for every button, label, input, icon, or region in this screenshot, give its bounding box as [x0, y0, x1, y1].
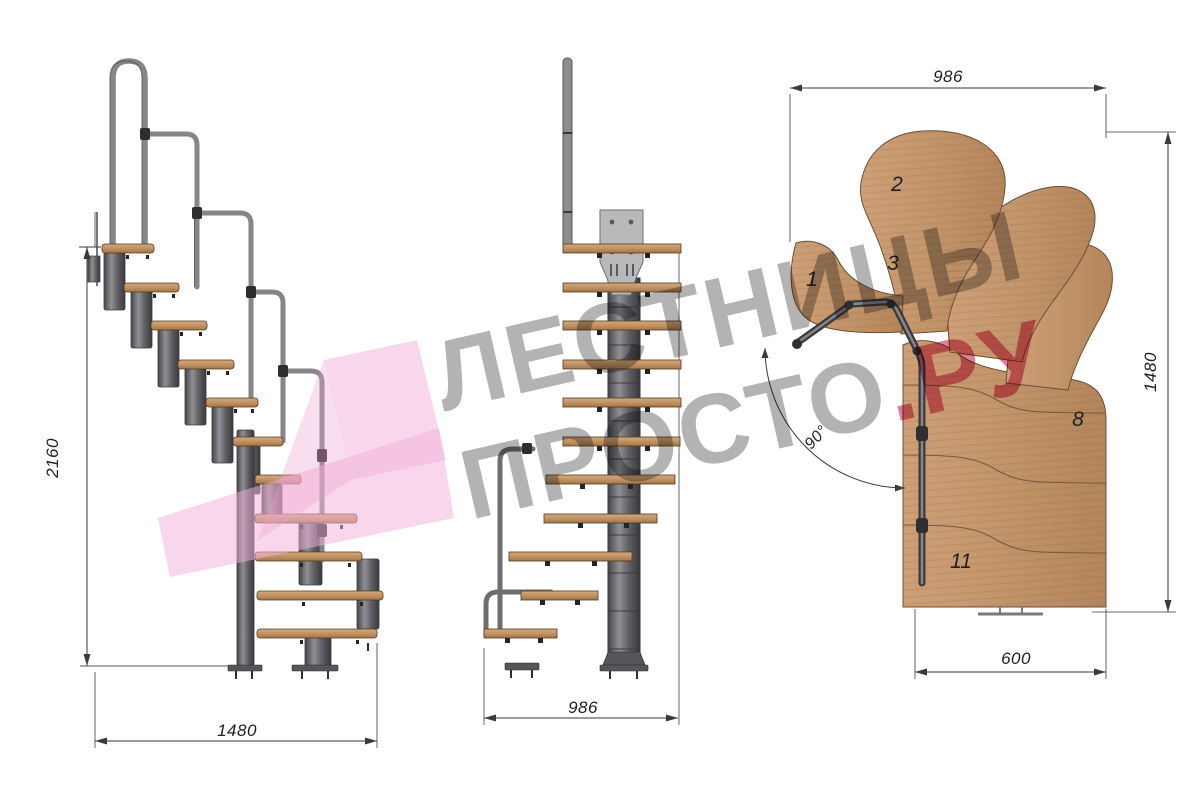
- plan-view: [791, 131, 1112, 614]
- front-view: [484, 58, 681, 725]
- tread-number-8: 8: [1072, 408, 1084, 432]
- staircase-vector-art: [0, 0, 1200, 790]
- tread-number-3: 3: [887, 252, 899, 276]
- dim-front-width: 986: [568, 698, 598, 718]
- dim-plan-bottom: 600: [1001, 649, 1031, 669]
- dim-side-height: 2160: [43, 438, 63, 478]
- dim-plan-top: 986: [933, 67, 963, 87]
- tread-number-11: 11: [950, 550, 972, 574]
- dim-side-width: 1480: [217, 721, 257, 741]
- tread-number-2: 2: [891, 173, 903, 197]
- staircase-drawing: 2160 1480 986 986 1480 600 90° 1 2 3 8 1…: [0, 0, 1200, 790]
- dim-plan-right: 1480: [1141, 352, 1161, 392]
- tread-number-1: 1: [806, 268, 818, 292]
